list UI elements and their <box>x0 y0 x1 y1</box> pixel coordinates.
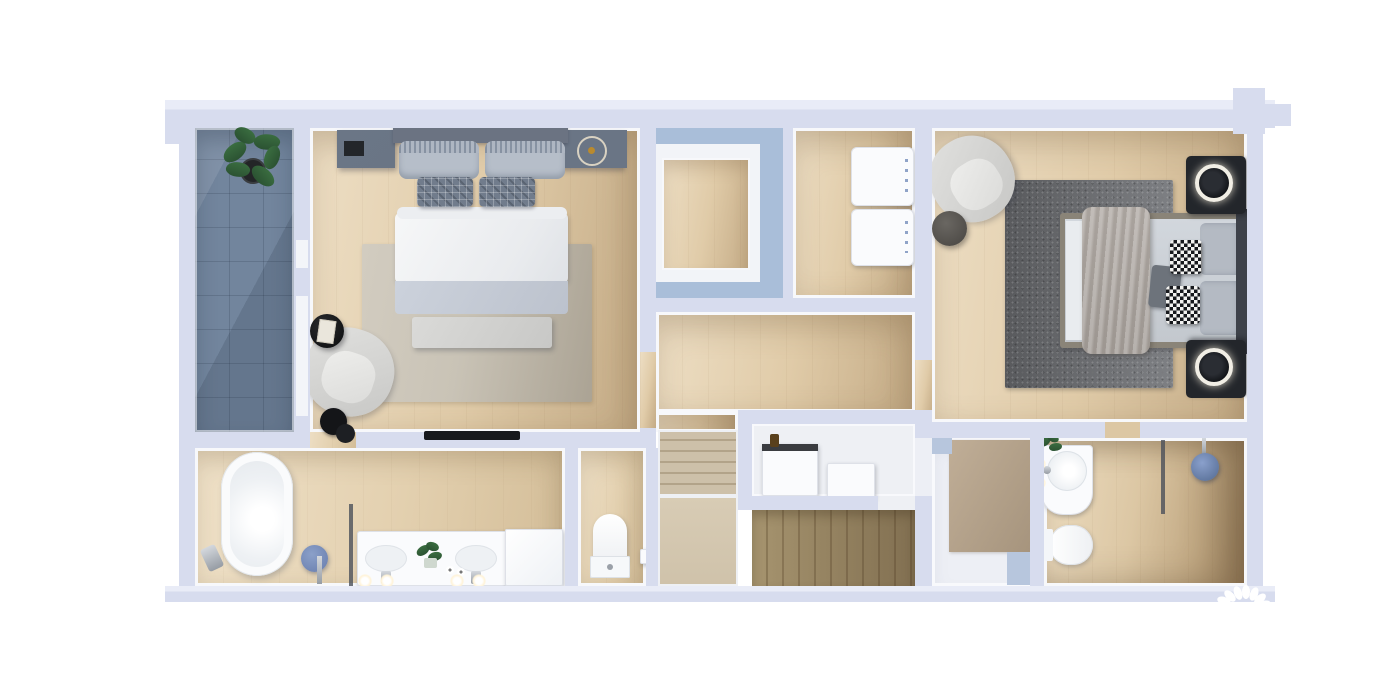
watermark-petal-logo <box>1220 584 1270 610</box>
wall-chimney-horizontal <box>1247 104 1291 126</box>
closet-glass-band-bottom <box>656 282 760 298</box>
ensuite-toilet <box>1049 525 1093 565</box>
wall-nook-top <box>738 410 932 424</box>
wall-niche-small <box>296 240 308 268</box>
flush-button <box>607 564 613 570</box>
rain-shower-head <box>1191 453 1219 481</box>
closet-inner-floor <box>662 158 750 270</box>
bed1-bench <box>412 317 552 348</box>
wall-niche-shelf <box>296 296 308 416</box>
candle <box>446 566 454 574</box>
nook-cabinet-small <box>827 463 875 499</box>
pillow-stripe-band <box>399 141 479 153</box>
vanity-plant <box>416 540 444 568</box>
wall-laundry-bed2 <box>915 128 932 298</box>
open-book <box>316 319 336 344</box>
wall-closet-laundry <box>783 128 793 298</box>
doorway-ensuite <box>1105 422 1140 438</box>
wall-balcony-bottom <box>179 432 310 448</box>
freestanding-bathtub <box>221 452 293 576</box>
hallway-floor-strip <box>656 412 738 432</box>
blue-vanity-stool <box>301 545 328 572</box>
ring-lamp <box>1195 348 1233 386</box>
stair-nook-floor-gap <box>878 496 915 510</box>
wall-top <box>165 100 1275 128</box>
bed2-houndstooth-cushion-top <box>1170 240 1202 274</box>
dryer-controls <box>905 221 908 253</box>
wall-tv <box>424 431 520 440</box>
floor-faucet <box>317 556 322 584</box>
nightstand-left <box>337 130 395 168</box>
dressing-rug <box>949 440 1031 552</box>
wall-bottom <box>165 586 1275 602</box>
bed1-pillow-left <box>399 141 479 179</box>
bed2-taupe-throw <box>1082 207 1150 354</box>
wall-wc-left <box>565 448 578 586</box>
doorway-master-bedroom <box>640 352 656 428</box>
bed1-pillow-right <box>485 141 565 179</box>
bed1-duvet <box>395 213 568 283</box>
stacked-dryer <box>851 209 914 266</box>
bottle <box>770 434 779 447</box>
side-table-black <box>310 314 344 348</box>
tall-cabinet <box>505 529 563 586</box>
stairs-upper-flight <box>658 430 738 496</box>
floor-plan-render <box>0 0 1383 692</box>
blue-threshold <box>932 438 952 454</box>
wall-wc-right <box>646 448 658 586</box>
plant-vase <box>424 558 437 568</box>
wall-hall-right-a <box>915 312 932 360</box>
closet-glass-band-right <box>760 128 783 298</box>
wall-left <box>179 128 195 586</box>
bedroom2-ottoman <box>932 211 967 246</box>
nightstand-tray <box>344 141 364 156</box>
nightstand-right <box>563 130 627 168</box>
clock-fan <box>588 147 595 154</box>
wall-bed1-right-a <box>640 128 656 352</box>
wc-toilet-base <box>590 556 630 578</box>
pillow-stripe-band <box>485 141 565 153</box>
bed1-blanket <box>395 281 568 314</box>
wall-right <box>1247 128 1263 586</box>
doorway-dressing <box>915 438 932 496</box>
bed1-plaid-cushion-left <box>417 177 473 207</box>
nightstand-ring-lamp-bottom <box>1186 340 1246 398</box>
nook-cabinet-large <box>762 444 818 496</box>
wall-hall-right-c <box>915 496 932 586</box>
wall-bed2-bottom-a <box>932 422 1105 438</box>
stacked-washer <box>851 147 914 206</box>
nightstand-ring-lamp-top <box>1186 156 1246 214</box>
wall-bed1-bottom-a <box>294 432 304 448</box>
wall-hall-right-b <box>915 424 932 438</box>
wall-mid-bottom <box>656 298 932 312</box>
stairs-lower-flight <box>752 510 915 586</box>
hallway-floor <box>656 312 915 412</box>
washer-controls <box>905 159 908 193</box>
ensuite-shower-screen <box>1161 440 1165 514</box>
stairs-landing <box>658 496 738 586</box>
vanity-basin-left <box>365 545 407 572</box>
bed2-folded-sheet <box>1066 221 1082 340</box>
wall-nook-bottom <box>738 496 878 510</box>
bathtub-basin <box>230 461 284 567</box>
black-stool-small <box>336 424 355 443</box>
bed1-sheet-fold <box>397 207 567 219</box>
bed1-plaid-cushion-right <box>479 177 535 207</box>
bed2-houndstooth-cushion-bottom <box>1166 286 1200 324</box>
shower-glass-screen <box>349 504 353 586</box>
plant-leaf <box>1049 443 1062 451</box>
balcony-plant <box>220 122 290 192</box>
wall-ensuite-divider <box>1030 438 1044 586</box>
ring-lamp <box>1195 164 1233 202</box>
wall-bed2-bottom-b <box>1140 422 1247 438</box>
wall-bed1-right-b <box>640 428 656 448</box>
wall-nook-left <box>738 410 752 510</box>
